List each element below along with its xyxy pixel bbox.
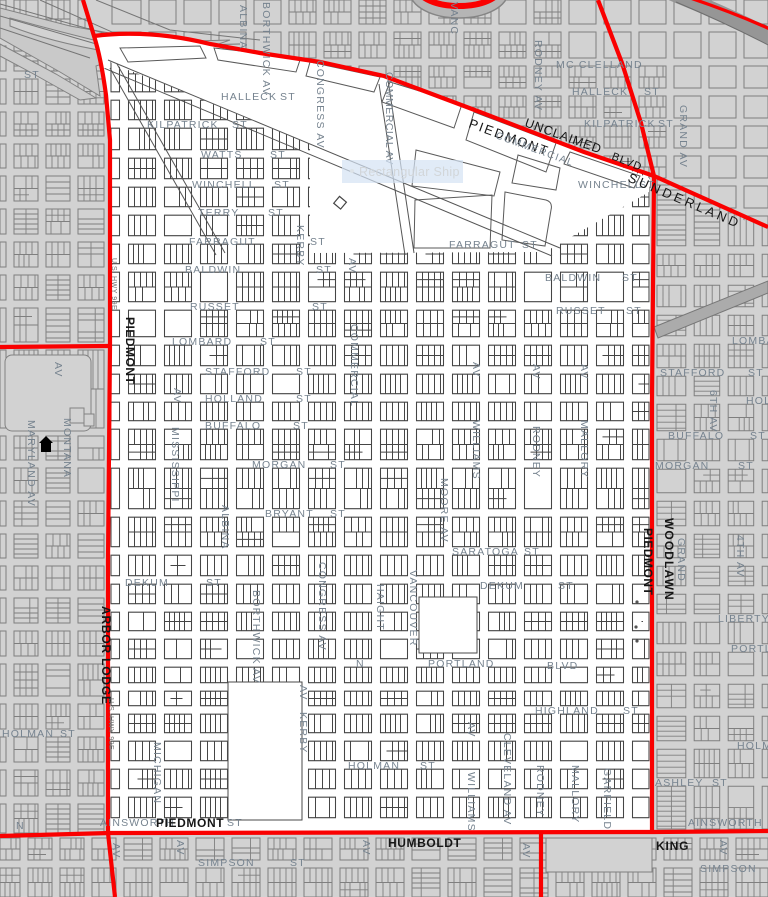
- svg-text:ASHLEY: ASHLEY: [655, 777, 704, 789]
- svg-text:FARRAGUT: FARRAGUT: [449, 239, 516, 251]
- svg-text:KILPATRICK: KILPATRICK: [584, 118, 656, 130]
- svg-text:ST: ST: [296, 366, 312, 378]
- svg-text:MICHIGAN: MICHIGAN: [151, 742, 163, 804]
- svg-text:ST: ST: [260, 336, 276, 348]
- svg-text:SIMPSON: SIMPSON: [700, 863, 757, 875]
- svg-text:AV: AV: [717, 840, 729, 856]
- svg-text:ST: ST: [274, 179, 290, 191]
- svg-text:AV: AV: [171, 388, 183, 404]
- svg-text:WILLIAMS: WILLIAMS: [465, 772, 477, 832]
- svg-text:FARRAGUT: FARRAGUT: [189, 236, 256, 248]
- svg-text:LOMBARD: LOMBARD: [172, 336, 232, 348]
- svg-text:VANC: VANC: [448, 2, 460, 35]
- svg-text:ST: ST: [310, 236, 326, 248]
- svg-text:GRAND AV: GRAND AV: [677, 105, 689, 168]
- svg-text:LIBERTY: LIBERTY: [718, 613, 768, 625]
- svg-text:Rectangular Ship: Rectangular Ship: [359, 165, 460, 179]
- svg-text:ST: ST: [24, 69, 40, 81]
- svg-text:RODNEY AV: RODNEY AV: [532, 40, 544, 111]
- svg-text:ST: ST: [232, 119, 248, 131]
- svg-text:ST: ST: [227, 817, 243, 829]
- svg-text:CONGRESS AV: CONGRESS AV: [314, 60, 326, 149]
- svg-text:WILLIAMS: WILLIAMS: [470, 420, 482, 480]
- svg-text:HOLMAN: HOLMAN: [737, 740, 768, 752]
- svg-text:MALLORY: MALLORY: [578, 420, 590, 478]
- svg-text:U.S. HWY 99E: U.S. HWY 99E: [107, 698, 114, 750]
- svg-text:AV: AV: [360, 840, 372, 856]
- svg-text:AINSWORTH: AINSWORTH: [688, 817, 763, 829]
- svg-text:ST: ST: [622, 272, 638, 284]
- svg-text:ST: ST: [312, 301, 328, 313]
- svg-text:HOLMAN: HOLMAN: [348, 760, 400, 772]
- svg-text:MORGAN: MORGAN: [252, 459, 306, 471]
- svg-text:MALLORY: MALLORY: [569, 765, 581, 823]
- svg-text:HIGHLAND: HIGHLAND: [535, 705, 599, 717]
- svg-text:ALBINA: ALBINA: [237, 5, 249, 50]
- svg-text:MC CLELLAND: MC CLELLAND: [556, 59, 643, 71]
- svg-text:ST: ST: [626, 305, 642, 317]
- svg-text:ARBOR LODGE: ARBOR LODGE: [99, 606, 113, 705]
- svg-text:U.S. HWY 99E: U.S. HWY 99E: [110, 258, 117, 310]
- svg-text:AV: AV: [346, 258, 358, 274]
- svg-text:PIEDMONT: PIEDMONT: [123, 317, 137, 385]
- svg-text:HUMBOLDT: HUMBOLDT: [388, 836, 462, 850]
- svg-text:WATTS: WATTS: [201, 149, 243, 161]
- svg-text:ST: ST: [738, 460, 754, 472]
- svg-text:HAIGHT: HAIGHT: [374, 584, 386, 631]
- svg-text:RODNEY: RODNEY: [530, 426, 542, 478]
- svg-text:AV: AV: [530, 364, 542, 380]
- svg-text:PORTLAND: PORTLAND: [428, 658, 495, 670]
- svg-text:MARYLAND AV: MARYLAND AV: [25, 420, 37, 507]
- svg-text:ST: ST: [296, 393, 312, 405]
- svg-text:WOODLAWN: WOODLAWN: [662, 518, 676, 601]
- svg-text:ST: ST: [524, 546, 540, 558]
- svg-text:COMMERCIAL AV: COMMERCIAL AV: [383, 72, 395, 165]
- svg-text:RUSSET: RUSSET: [556, 305, 606, 317]
- svg-text:STAFFORD: STAFFORD: [205, 366, 270, 378]
- svg-text:BLVD: BLVD: [547, 660, 578, 672]
- svg-text:RODNEY: RODNEY: [534, 765, 546, 817]
- svg-text:GRAND: GRAND: [675, 538, 687, 582]
- svg-text:ST: ST: [280, 91, 296, 103]
- svg-text:AV: AV: [465, 722, 477, 738]
- svg-text:CONGRESS AV: CONGRESS AV: [316, 562, 328, 651]
- svg-text:CLEVELAND AV: CLEVELAND AV: [501, 733, 513, 825]
- svg-text:BALDWIN: BALDWIN: [545, 272, 601, 284]
- svg-text:BUFFALO: BUFFALO: [205, 420, 261, 432]
- svg-text:BALDWIN: BALDWIN: [185, 264, 241, 276]
- svg-text:AV: AV: [578, 364, 590, 380]
- svg-text:DEKUM: DEKUM: [125, 577, 169, 589]
- svg-text:ST: ST: [60, 728, 76, 740]
- svg-text:ST: ST: [558, 580, 574, 592]
- svg-text:GARFIELD: GARFIELD: [601, 768, 613, 830]
- svg-text:ALBINA: ALBINA: [219, 505, 231, 550]
- svg-text:LOMBARD: LOMBARD: [732, 335, 768, 347]
- svg-text:KERBY: KERBY: [297, 712, 309, 754]
- svg-text:MOORE AV: MOORE AV: [438, 478, 450, 543]
- svg-text:ST: ST: [522, 239, 538, 251]
- svg-text:ST: ST: [623, 705, 639, 717]
- svg-text:HOLLAND: HOLLAND: [746, 395, 768, 407]
- svg-text:KERBY: KERBY: [294, 225, 306, 267]
- svg-text:RUSSET: RUSSET: [190, 301, 240, 313]
- svg-text:AV: AV: [297, 685, 309, 701]
- svg-text:MISSISSIPPI: MISSISSIPPI: [169, 427, 181, 503]
- svg-text:TERRY: TERRY: [198, 207, 239, 219]
- svg-text:ST: ST: [268, 207, 284, 219]
- svg-text:ST: ST: [293, 420, 309, 432]
- svg-text:BRYANT: BRYANT: [265, 508, 314, 520]
- svg-text:WINCHELL: WINCHELL: [192, 179, 256, 191]
- svg-text:VANCOUVER: VANCOUVER: [407, 570, 419, 647]
- svg-text:SARATOGA: SARATOGA: [452, 546, 519, 558]
- svg-text:DEKUM: DEKUM: [480, 580, 524, 592]
- svg-text:MONTANA: MONTANA: [61, 418, 73, 478]
- svg-text:KING: KING: [656, 839, 689, 853]
- svg-text:PIEDMONT: PIEDMONT: [156, 816, 224, 830]
- svg-text:AV: AV: [52, 362, 64, 378]
- svg-text:ST: ST: [420, 760, 436, 772]
- svg-text:MORGAN: MORGAN: [655, 460, 709, 472]
- svg-text:BORTHWICK AV: BORTHWICK AV: [260, 2, 272, 96]
- svg-text:ST: ST: [750, 430, 766, 442]
- svg-text:AV: AV: [470, 362, 482, 378]
- svg-text:BORTHWICK AV: BORTHWICK AV: [250, 590, 262, 684]
- svg-text:AV: AV: [174, 840, 186, 856]
- svg-text:4TH AV: 4TH AV: [734, 535, 746, 578]
- svg-text:ST: ST: [316, 264, 332, 276]
- svg-text:PORTLAND: PORTLAND: [731, 643, 768, 655]
- svg-text:ST: ST: [748, 367, 764, 379]
- svg-text:ST: ST: [270, 149, 286, 161]
- svg-text:ST: ST: [658, 118, 674, 130]
- svg-text:AV: AV: [520, 843, 532, 859]
- svg-text:N: N: [16, 820, 25, 832]
- svg-text:ST: ST: [330, 459, 346, 471]
- svg-text:KILPATRICK: KILPATRICK: [147, 119, 219, 131]
- svg-text:ST: ST: [712, 777, 728, 789]
- svg-text:PIEDMONT: PIEDMONT: [641, 528, 655, 596]
- svg-text:AV: AV: [110, 843, 122, 859]
- svg-text:SIMPSON: SIMPSON: [198, 857, 255, 869]
- svg-text:STAFFORD: STAFFORD: [660, 367, 725, 379]
- svg-text:HALLECK: HALLECK: [572, 86, 628, 98]
- svg-text:ST: ST: [644, 86, 660, 98]
- svg-text:ST: ST: [206, 577, 222, 589]
- svg-text:ST: ST: [290, 857, 306, 869]
- svg-text:6TH AV: 6TH AV: [707, 390, 719, 433]
- svg-text:COMMERCIAL: COMMERCIAL: [348, 324, 360, 407]
- svg-text:N: N: [356, 658, 365, 670]
- svg-text:HOLMAN: HOLMAN: [2, 728, 54, 740]
- svg-text:HOLLAND: HOLLAND: [205, 393, 263, 405]
- svg-text:ST: ST: [330, 508, 346, 520]
